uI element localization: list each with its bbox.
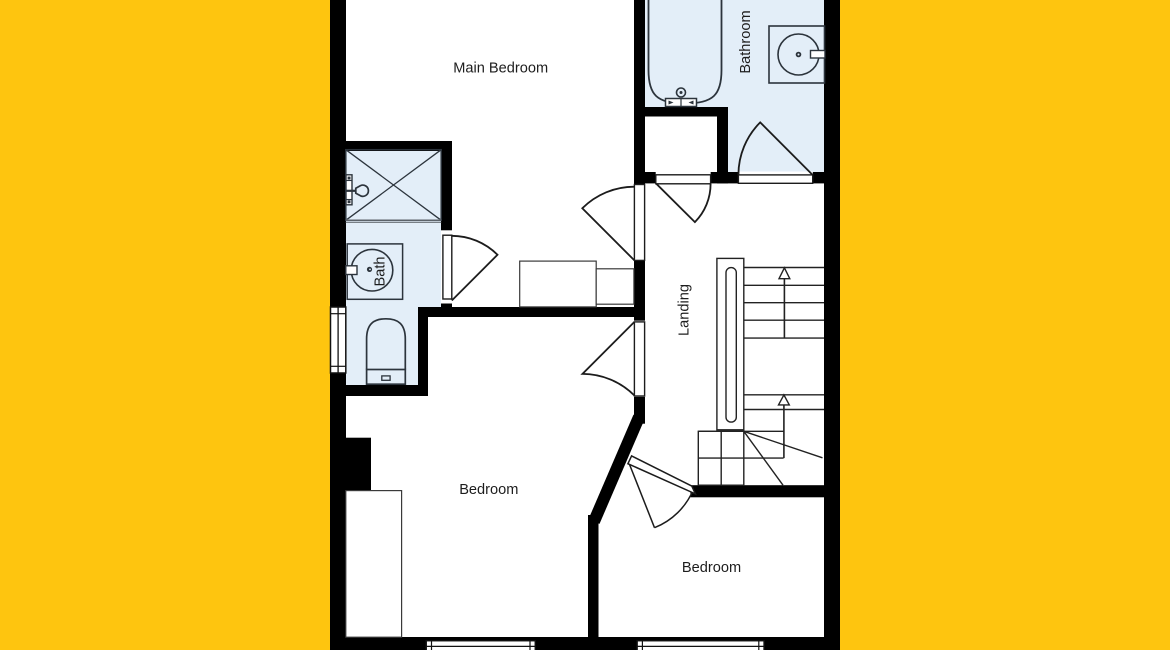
svg-text:Bath: Bath [373,256,389,286]
svg-text:Bathroom: Bathroom [738,10,754,73]
svg-text:Main Bedroom: Main Bedroom [453,61,548,77]
svg-text:Bedroom: Bedroom [459,482,518,498]
svg-text:Bedroom: Bedroom [682,560,741,576]
svg-text:Landing: Landing [677,284,693,336]
